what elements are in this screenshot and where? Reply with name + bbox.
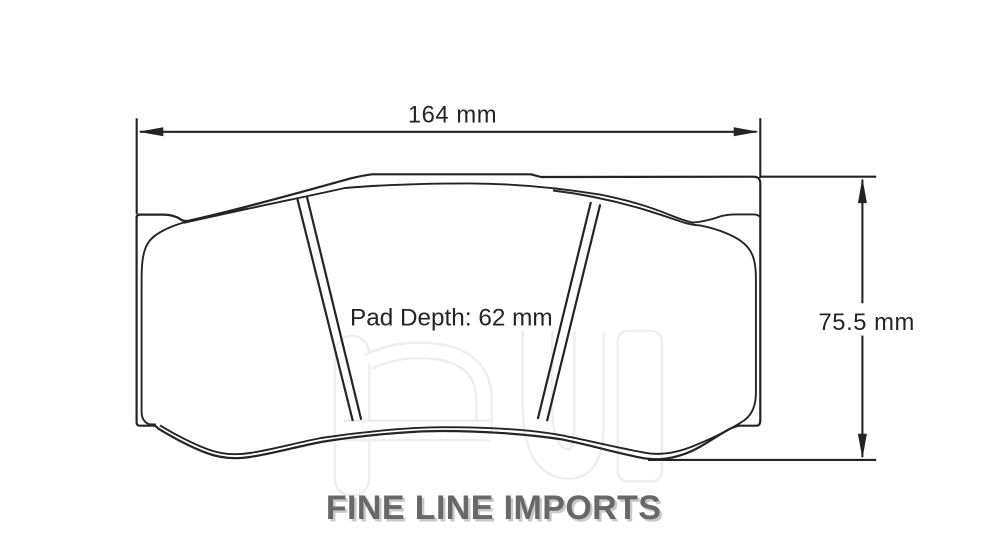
svg-text:164 mm: 164 mm — [408, 102, 497, 129]
svg-text:FINE LINE IMPORTS: FINE LINE IMPORTS — [326, 489, 661, 527]
svg-text:75.5 mm: 75.5 mm — [819, 309, 915, 336]
svg-text:Pad Depth: 62 mm: Pad Depth: 62 mm — [350, 304, 553, 331]
